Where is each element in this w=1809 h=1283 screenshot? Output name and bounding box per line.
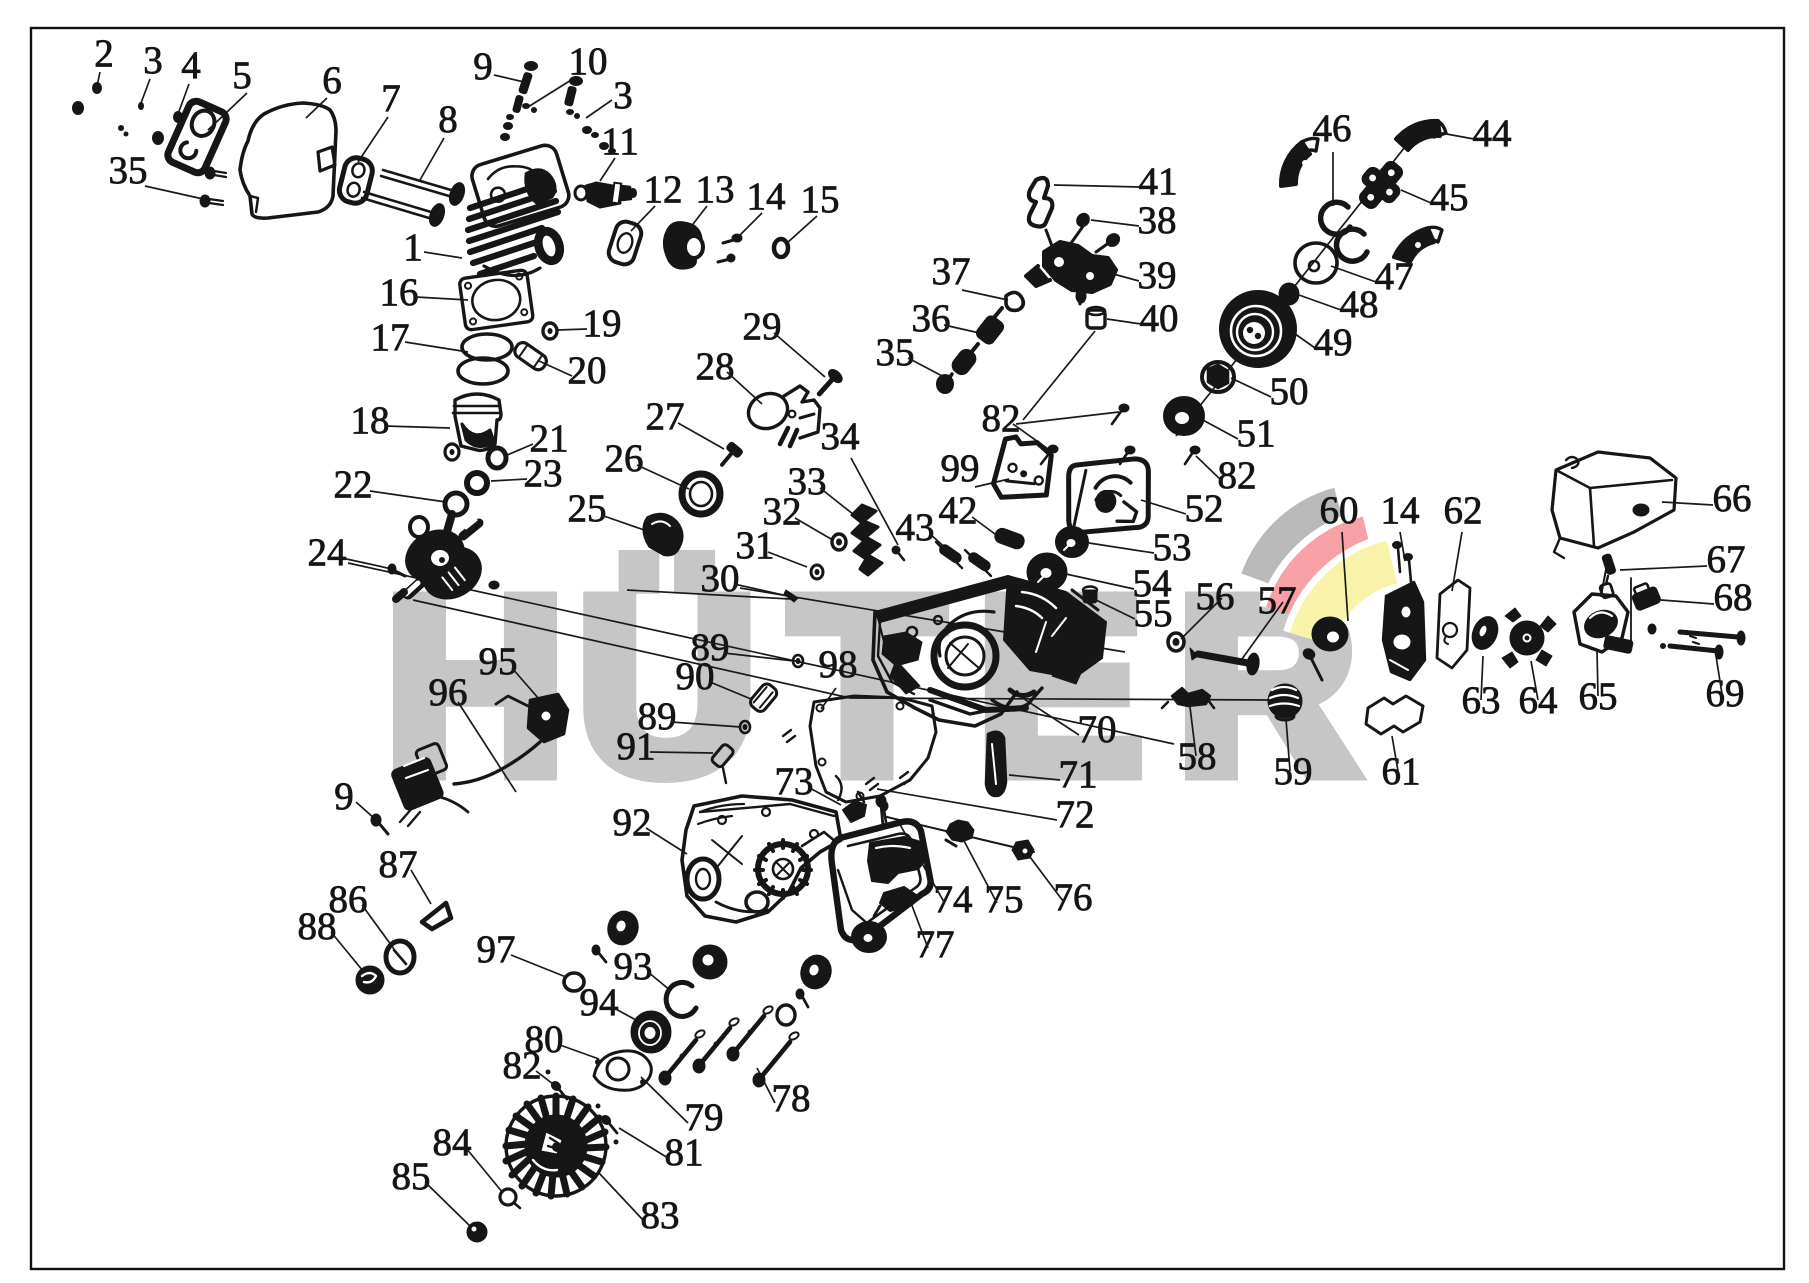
- svg-text:14: 14: [747, 175, 786, 218]
- svg-text:6: 6: [322, 59, 342, 102]
- svg-text:7: 7: [381, 77, 401, 120]
- svg-text:62: 62: [1444, 489, 1483, 532]
- svg-text:44: 44: [1473, 112, 1512, 155]
- svg-text:50: 50: [1270, 370, 1309, 413]
- svg-text:17: 17: [371, 316, 410, 359]
- svg-text:13: 13: [696, 168, 735, 211]
- svg-text:43: 43: [896, 506, 935, 549]
- svg-text:71: 71: [1059, 753, 1098, 796]
- svg-text:15: 15: [801, 178, 840, 221]
- svg-text:14: 14: [1381, 489, 1420, 532]
- svg-text:88: 88: [298, 905, 337, 948]
- svg-text:99: 99: [941, 447, 980, 490]
- svg-text:3: 3: [613, 74, 633, 117]
- svg-text:84: 84: [433, 1121, 472, 1164]
- svg-text:9: 9: [473, 45, 493, 88]
- svg-text:35: 35: [109, 149, 148, 192]
- svg-text:93: 93: [614, 945, 653, 988]
- svg-text:52: 52: [1185, 487, 1224, 530]
- svg-text:67: 67: [1707, 538, 1746, 581]
- svg-text:83: 83: [641, 1194, 680, 1237]
- svg-text:72: 72: [1056, 793, 1095, 836]
- svg-text:2: 2: [94, 32, 114, 75]
- svg-text:39: 39: [1138, 254, 1177, 297]
- svg-text:55: 55: [1134, 592, 1173, 635]
- svg-text:4: 4: [181, 44, 201, 87]
- svg-text:16: 16: [380, 271, 419, 314]
- svg-text:9: 9: [334, 775, 354, 818]
- svg-text:28: 28: [696, 345, 735, 388]
- svg-text:90: 90: [676, 655, 715, 698]
- svg-text:82: 82: [982, 397, 1021, 440]
- svg-text:19: 19: [583, 302, 622, 345]
- svg-text:27: 27: [646, 395, 685, 438]
- svg-text:40: 40: [1140, 297, 1179, 340]
- svg-text:8: 8: [438, 98, 458, 141]
- svg-text:92: 92: [613, 801, 652, 844]
- svg-text:94: 94: [580, 981, 619, 1024]
- svg-text:73: 73: [775, 760, 814, 803]
- svg-text:45: 45: [1430, 176, 1469, 219]
- svg-text:36: 36: [912, 297, 951, 340]
- svg-text:1: 1: [403, 226, 423, 269]
- svg-text:42: 42: [939, 489, 978, 532]
- svg-text:78: 78: [772, 1077, 811, 1120]
- svg-text:51: 51: [1237, 412, 1276, 455]
- svg-text:25: 25: [568, 487, 607, 530]
- svg-text:66: 66: [1713, 477, 1752, 520]
- svg-text:59: 59: [1274, 750, 1313, 793]
- svg-text:56: 56: [1196, 575, 1235, 618]
- svg-text:11: 11: [601, 120, 639, 163]
- svg-text:37: 37: [932, 250, 971, 293]
- svg-text:3: 3: [143, 39, 163, 82]
- svg-text:97: 97: [477, 928, 516, 971]
- svg-text:85: 85: [392, 1155, 431, 1198]
- svg-text:68: 68: [1714, 576, 1753, 619]
- svg-text:48: 48: [1340, 283, 1379, 326]
- svg-text:26: 26: [605, 437, 644, 480]
- svg-text:5: 5: [232, 54, 252, 97]
- svg-text:98: 98: [819, 643, 858, 686]
- svg-text:24: 24: [308, 531, 347, 574]
- svg-text:12: 12: [644, 168, 683, 211]
- svg-text:91: 91: [617, 725, 656, 768]
- svg-text:31: 31: [736, 524, 775, 567]
- svg-text:81: 81: [665, 1131, 704, 1174]
- svg-text:82: 82: [503, 1044, 542, 1087]
- svg-text:35: 35: [876, 331, 915, 374]
- svg-text:23: 23: [524, 452, 563, 495]
- svg-text:60: 60: [1320, 489, 1359, 532]
- svg-text:34: 34: [821, 415, 860, 458]
- svg-text:49: 49: [1314, 321, 1353, 364]
- svg-text:69: 69: [1706, 672, 1745, 715]
- svg-text:58: 58: [1178, 735, 1217, 778]
- svg-text:38: 38: [1138, 199, 1177, 242]
- svg-text:41: 41: [1139, 160, 1178, 203]
- svg-text:61: 61: [1382, 750, 1421, 793]
- svg-text:29: 29: [743, 305, 782, 348]
- svg-text:20: 20: [568, 349, 607, 392]
- svg-text:87: 87: [379, 843, 418, 886]
- svg-text:64: 64: [1519, 679, 1558, 722]
- svg-text:22: 22: [334, 463, 373, 506]
- svg-text:75: 75: [985, 878, 1024, 921]
- svg-text:18: 18: [351, 399, 390, 442]
- svg-text:95: 95: [479, 640, 518, 683]
- svg-text:74: 74: [934, 878, 973, 921]
- svg-text:57: 57: [1258, 579, 1297, 622]
